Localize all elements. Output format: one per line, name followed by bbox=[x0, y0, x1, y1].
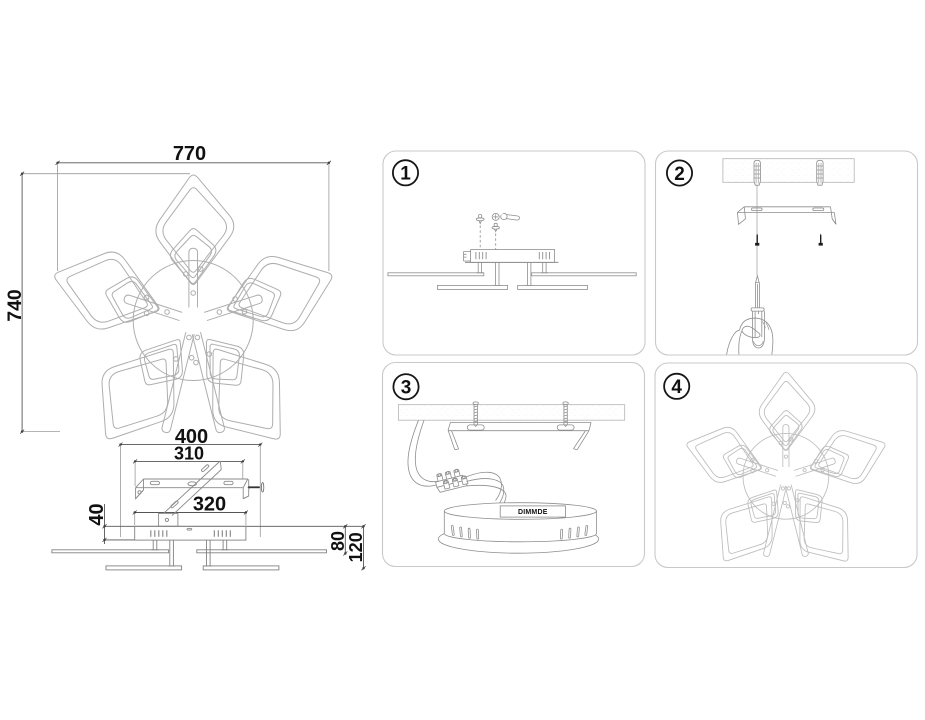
svg-text:DIMMDE: DIMMDE bbox=[518, 509, 548, 516]
svg-text:310: 310 bbox=[174, 444, 204, 464]
svg-text:2: 2 bbox=[674, 164, 685, 185]
svg-text:40: 40 bbox=[86, 503, 108, 525]
svg-text:120: 120 bbox=[346, 532, 366, 562]
svg-text:80: 80 bbox=[328, 531, 348, 551]
svg-text:1: 1 bbox=[400, 164, 411, 185]
svg-text:320: 320 bbox=[193, 493, 226, 515]
svg-text:4: 4 bbox=[671, 377, 682, 398]
svg-text:740: 740 bbox=[4, 289, 26, 322]
svg-text:770: 770 bbox=[173, 143, 206, 165]
svg-text:3: 3 bbox=[401, 378, 412, 399]
